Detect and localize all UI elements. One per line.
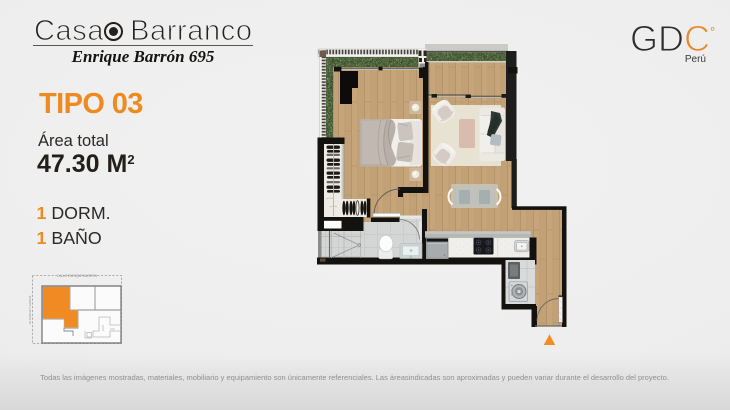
svg-text:JR GARCIA Y GARCIA: JR GARCIA Y GARCIA — [28, 295, 32, 324]
svg-text:CALLE ENRIQUE BARRON: CALLE ENRIQUE BARRON — [57, 274, 98, 278]
